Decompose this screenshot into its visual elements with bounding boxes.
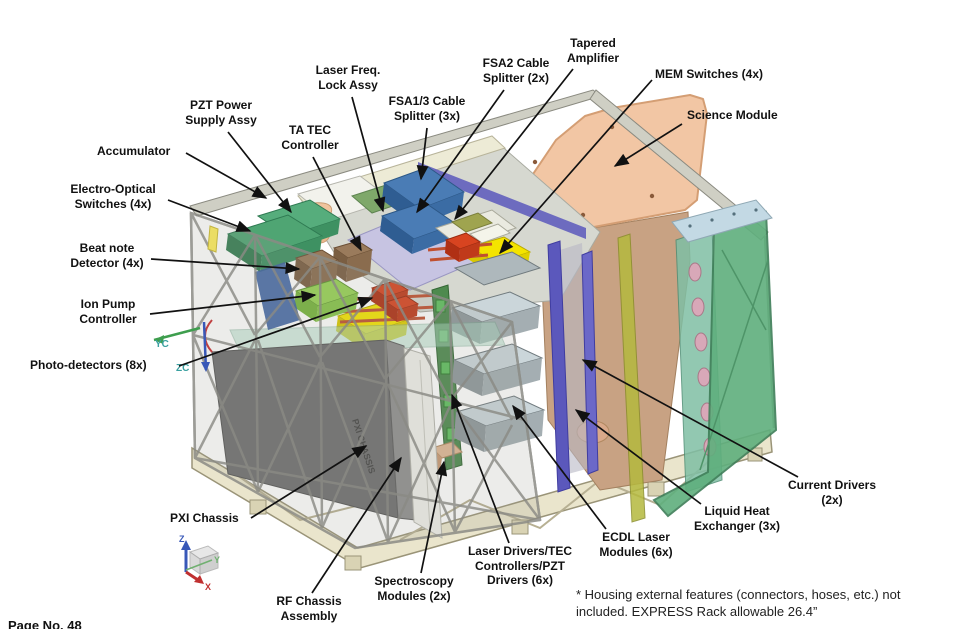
callout-mem-switches: MEM Switches (4x) [655,67,795,82]
axis-label-y: Y [214,555,220,565]
callout-accumulator: Accumulator [97,144,197,159]
callout-photo-detectors: Photo-detectors (8x) [30,358,190,373]
callout-rf-chassis-assembly: RF Chassis Assembly [259,594,359,623]
callout-ecdl-laser-modules: ECDL Laser Modules (6x) [581,530,691,559]
figure-page: PXI CHASSIS YC ZC [0,0,960,629]
callout-fsa13-cable-splitter: FSA1/3 Cable Splitter (3x) [377,94,477,123]
coordinate-triad-xyz: Z Y X [179,534,220,592]
axis-label-x: X [205,582,211,592]
callout-beat-note-detector: Beat note Detector (4x) [57,241,157,270]
callout-electro-optical-switches: Electro-Optical Switches (4x) [53,182,173,211]
callout-pxi-chassis: PXI Chassis [170,511,260,526]
callout-liquid-heat-exchanger: Liquid Heat Exchanger (3x) [677,504,797,533]
callout-fsa2-cable-splitter: FSA2 Cable Splitter (2x) [466,56,566,85]
callout-laser-drivers: Laser Drivers/TEC Controllers/PZT Driver… [450,544,590,588]
callout-ta-tec-controller: TA TEC Controller [270,123,350,152]
callout-laser-freq-lock-assy: Laser Freq. Lock Assy [300,63,396,92]
axis-label-yc: YC [155,339,169,350]
page-number: Page No. 48 [8,618,82,629]
callout-science-module: Science Module [687,108,807,123]
footnote: * Housing external features (connectors,… [576,587,954,620]
callout-ion-pump-controller: Ion Pump Controller [63,297,153,326]
purple-rail-frame [548,241,598,492]
callout-current-drivers: Current Drivers (2x) [772,478,892,507]
callout-tapered-amplifier: Tapered Amplifier [553,36,633,65]
axis-label-z: Z [179,534,185,544]
callout-pzt-power-supply-assy: PZT Power Supply Assy [171,98,271,127]
